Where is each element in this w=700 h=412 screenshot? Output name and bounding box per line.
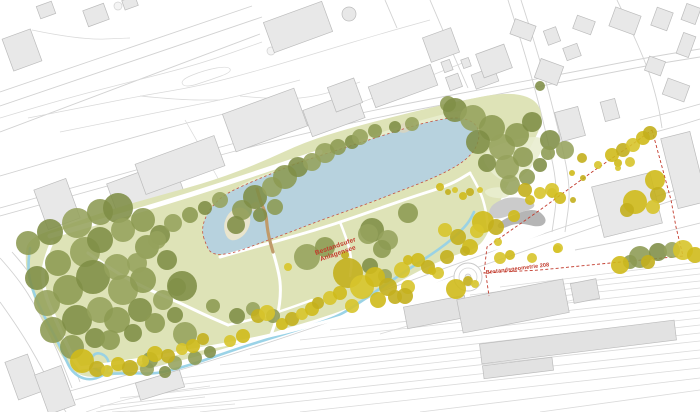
yellow-tree	[370, 292, 386, 308]
site-plan-svg: BestandsuferAnlagenseeBestandsgeometrie …	[0, 0, 700, 412]
olive-tree	[103, 193, 133, 223]
olive-tree	[541, 146, 555, 160]
yellow-tree	[570, 197, 576, 203]
building	[651, 7, 673, 31]
yellow-tree	[554, 192, 566, 204]
yellow-tree	[466, 188, 474, 196]
yellow-tree	[645, 170, 665, 190]
olive-tree	[253, 208, 267, 222]
olive-tree	[87, 227, 113, 253]
olive-tree	[157, 250, 177, 270]
olive-tree	[478, 154, 496, 172]
building	[662, 78, 689, 102]
olive-tree	[358, 224, 378, 244]
olive-tree	[159, 366, 171, 378]
yellow-tree	[518, 183, 532, 197]
yellow-tree	[137, 355, 149, 367]
yellow-tree	[428, 267, 436, 275]
site-plan-map: BestandsuferAnlagenseeBestandsgeometrie …	[0, 0, 700, 412]
street-line	[28, 20, 430, 118]
olive-tree	[198, 201, 212, 215]
olive-tree	[188, 351, 202, 365]
building	[445, 73, 462, 91]
street-line	[0, 34, 260, 132]
yellow-tree	[147, 346, 163, 362]
yellow-tree	[477, 187, 483, 193]
building	[2, 29, 42, 71]
olive-tree	[389, 121, 401, 133]
building	[644, 56, 665, 76]
yellow-tree	[236, 329, 250, 343]
building	[35, 365, 76, 412]
yellow-tree	[534, 187, 546, 199]
building	[510, 19, 536, 42]
olive-tree	[368, 124, 382, 138]
yellow-tree	[525, 195, 535, 205]
yellow-tree	[625, 157, 635, 167]
olive-tree	[148, 231, 166, 249]
yellow-tree	[161, 349, 175, 363]
yellow-tree	[615, 165, 621, 171]
yellow-tree	[345, 299, 359, 313]
building	[83, 3, 109, 26]
olive-tree	[124, 324, 142, 342]
yellow-tree	[505, 250, 515, 260]
street-line	[640, 104, 700, 120]
rail-curve	[112, 404, 235, 412]
yellow-tree	[445, 189, 451, 195]
olive-tree	[37, 219, 63, 245]
yellow-tree	[553, 243, 563, 253]
olive-tree	[206, 299, 220, 313]
yellow-tree	[494, 252, 506, 264]
building	[263, 1, 332, 52]
path-loop	[182, 67, 230, 86]
yellow-tree	[452, 187, 458, 193]
yellow-tree	[446, 279, 466, 299]
yellow-tree	[224, 335, 236, 347]
olive-tree	[145, 313, 165, 333]
yellow-tree	[397, 288, 413, 304]
building	[563, 43, 582, 60]
olive-tree	[45, 250, 71, 276]
building	[676, 32, 696, 57]
yellow-tree	[580, 175, 586, 181]
yellow-tree	[284, 263, 292, 271]
yellow-tree	[438, 223, 452, 237]
building	[461, 57, 472, 68]
yellow-tree	[470, 224, 484, 238]
olive-tree	[500, 175, 520, 195]
yellow-tree	[101, 365, 113, 377]
yellow-tree	[488, 219, 504, 235]
building	[600, 98, 620, 121]
olive-tree	[513, 147, 533, 167]
building	[573, 15, 596, 35]
olive-tree	[533, 158, 547, 172]
olive-tree	[167, 307, 183, 323]
yellow-tree	[471, 280, 479, 288]
yellow-tree	[259, 305, 275, 321]
building	[122, 0, 139, 10]
olive-tree	[352, 129, 368, 145]
olive-tree	[164, 214, 182, 232]
street-line	[140, 96, 220, 100]
yellow-tree	[403, 255, 413, 265]
olive-tree	[182, 207, 198, 223]
map-circle	[114, 2, 122, 10]
olive-tree	[556, 141, 574, 159]
yellow-tree	[646, 200, 660, 214]
yellow-tree	[641, 255, 655, 269]
building	[480, 320, 677, 364]
yellow-tree	[643, 126, 657, 140]
olive-tree	[204, 346, 216, 358]
yellow-tree	[508, 210, 520, 222]
street-line	[385, 0, 397, 28]
yellow-tree	[197, 333, 209, 345]
olive-tree	[405, 117, 419, 131]
yellow-tree	[333, 286, 347, 300]
olive-tree	[131, 208, 155, 232]
yellow-tree	[569, 170, 575, 176]
yellow-tree	[436, 183, 444, 191]
rail-line	[200, 358, 700, 412]
building	[661, 131, 700, 208]
olive-tree	[25, 266, 49, 290]
yellow-tree	[620, 203, 634, 217]
yellow-tree	[527, 253, 537, 263]
yellow-tree	[494, 238, 502, 246]
building	[543, 27, 560, 46]
label-text-geometry: Bestandsgeometrie 208	[486, 262, 550, 276]
olive-tree	[100, 330, 120, 350]
yellow-tree	[611, 256, 629, 274]
olive-tree	[398, 203, 418, 223]
yellow-tree	[594, 161, 602, 169]
olive-tree	[229, 308, 245, 324]
building	[368, 64, 438, 107]
olive-tree	[127, 253, 147, 273]
rail-line	[540, 390, 700, 412]
olive-tree	[466, 130, 490, 154]
olive-tree	[373, 240, 391, 258]
yellow-tree	[312, 297, 324, 309]
label-geometry: Bestandsgeometrie 208	[486, 262, 550, 276]
olive-tree	[522, 112, 542, 132]
yellow-tree	[577, 153, 587, 163]
olive-tree	[535, 81, 545, 91]
building	[36, 1, 55, 19]
building-round	[342, 7, 356, 21]
yellow-tree	[122, 360, 138, 376]
olive-tree	[267, 199, 283, 215]
olive-tree	[519, 169, 535, 185]
olive-tree	[167, 271, 197, 301]
yellow-tree	[460, 246, 470, 256]
street-line	[32, 30, 130, 39]
building	[681, 3, 700, 24]
olive-tree	[330, 139, 346, 155]
building	[422, 28, 459, 63]
olive-tree	[227, 216, 245, 234]
yellow-tree	[459, 192, 467, 200]
olive-tree	[16, 231, 40, 255]
olive-tree	[212, 192, 228, 208]
building	[609, 7, 641, 35]
yellow-tree	[440, 250, 454, 264]
